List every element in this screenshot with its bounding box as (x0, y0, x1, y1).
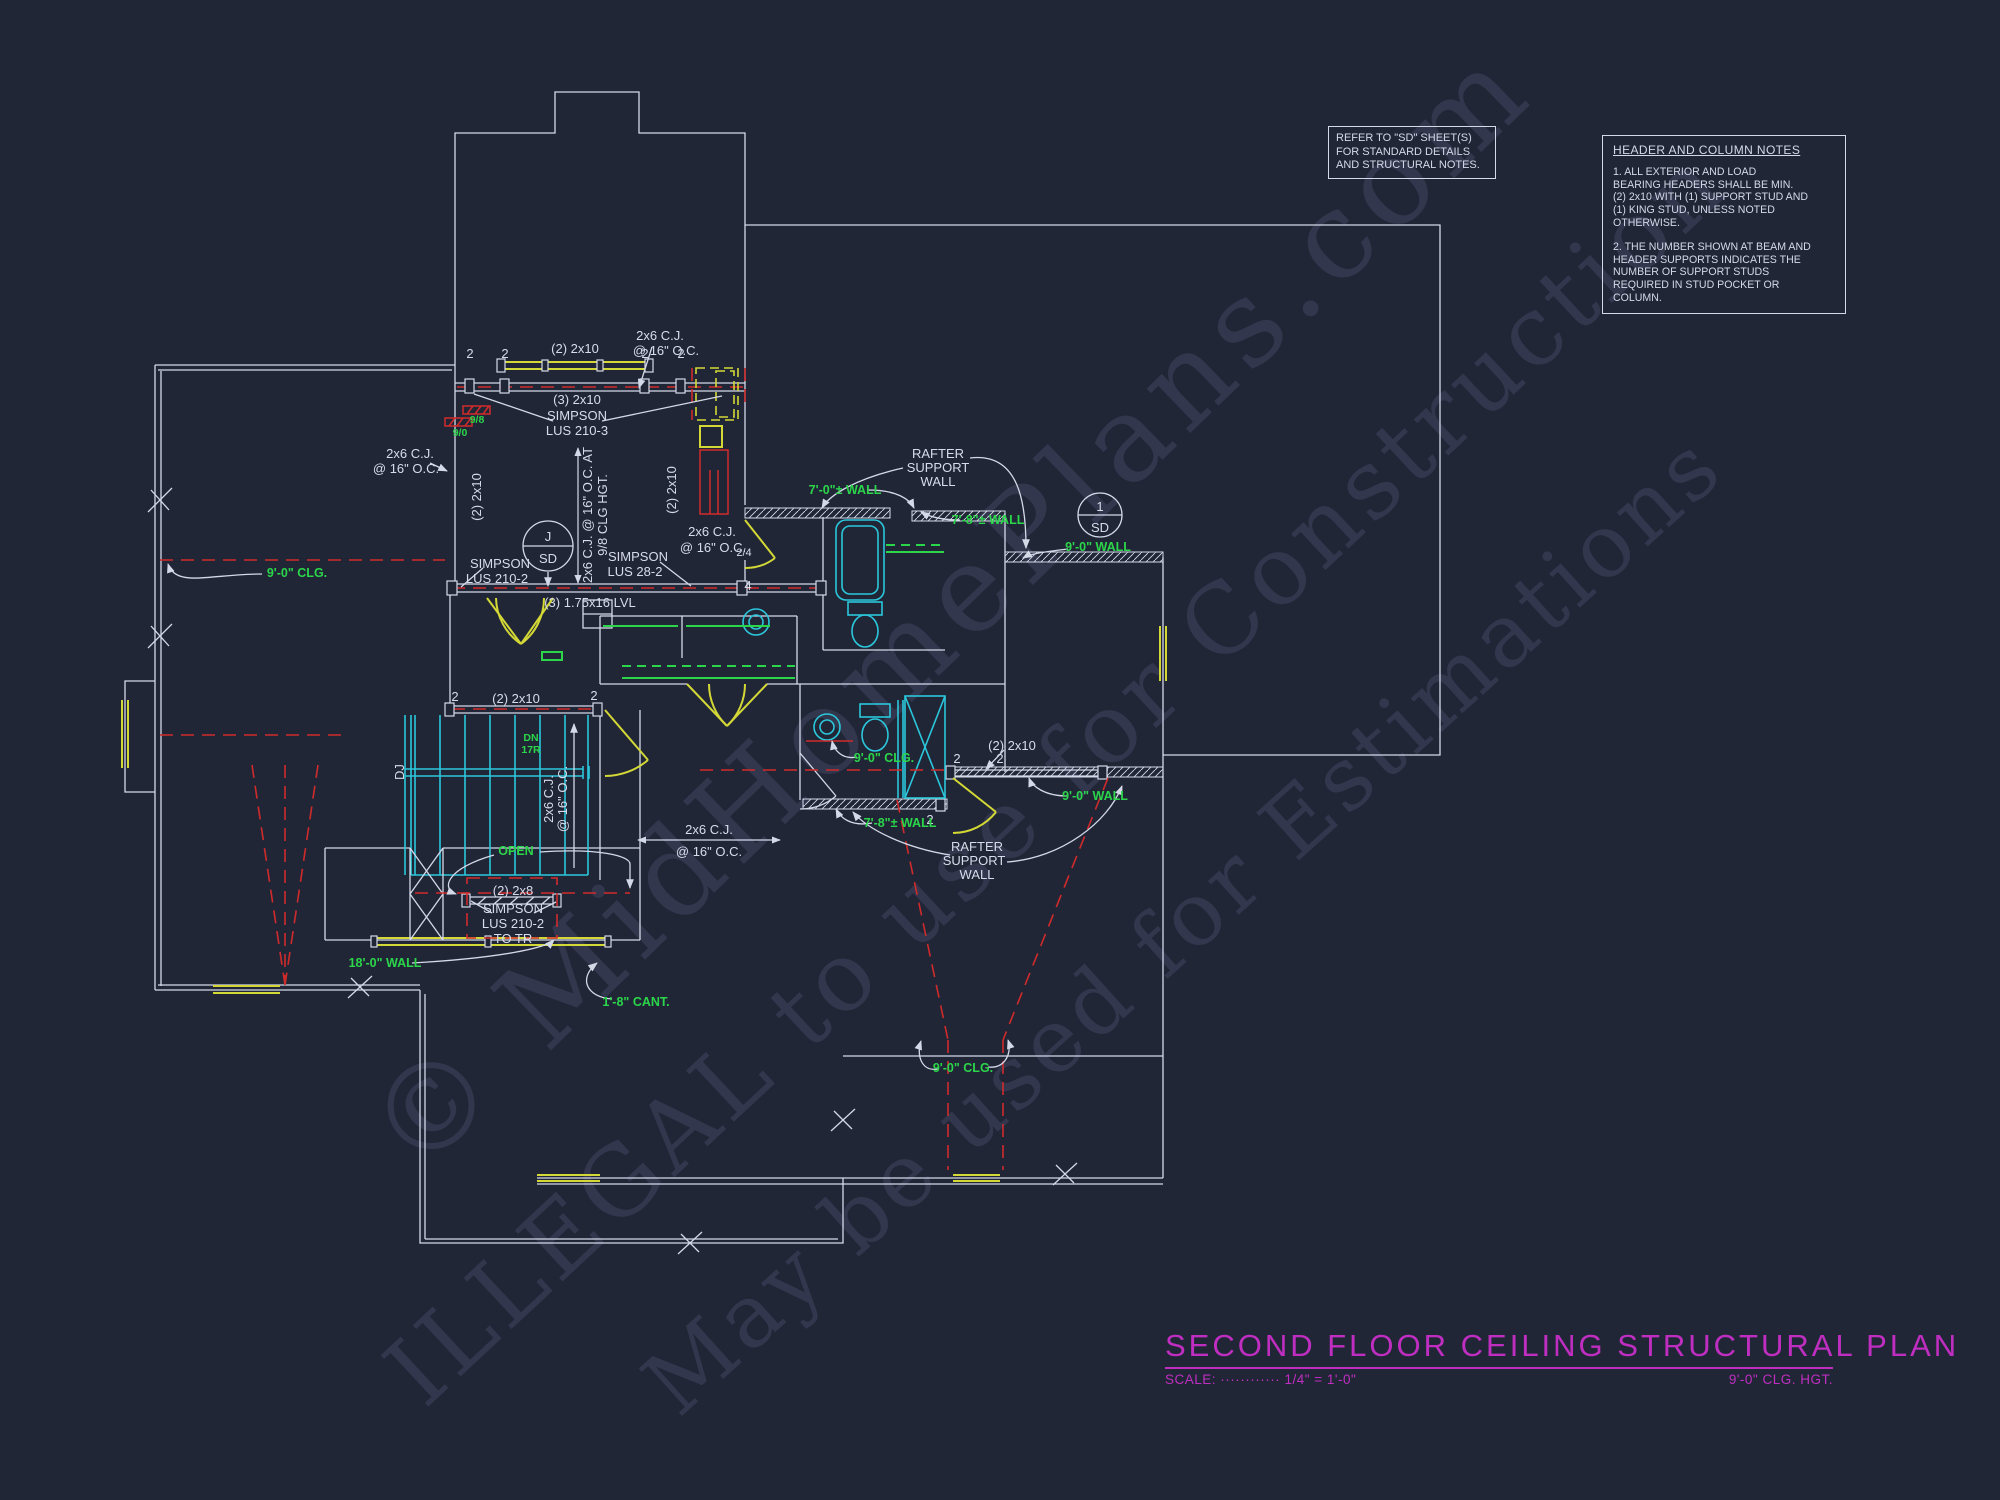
wall-7-0: 7'-0"± WALL (809, 483, 882, 497)
clg-9-0-bottom: 9'-0" CLG. (933, 1061, 993, 1075)
support-label: SUPPORT (943, 853, 1006, 868)
header-note-line: REQUIRED IN STUD POCKET OR (1613, 279, 1835, 292)
lvl-beam: (3) 1.75x16 LVL (544, 595, 636, 610)
refer-note-box: REFER TO "SD" SHEET(S) FOR STANDARD DETA… (1328, 126, 1496, 179)
header-note-line: (2) 2x10 WITH (1) SUPPORT STUD AND (1613, 191, 1835, 204)
stair-header-2x10: (2) 2x10 (492, 691, 540, 706)
open-label: OPEN (498, 844, 533, 858)
tag-9-8: 9/8 (470, 414, 485, 426)
header-note-line: OTHERWISE. (1613, 217, 1835, 230)
ceiling-height-note: 9'-0" CLG. HGT. (1729, 1372, 1833, 1387)
marker-sd: SD (539, 551, 557, 566)
cad-sheet: © MidHomePlans.com ILLEGAL to use for Co… (0, 0, 2000, 1500)
stud-count: 2 (996, 751, 1003, 766)
wall-2x10-right: (2) 2x10 (664, 466, 679, 514)
stud-count: 2 (953, 751, 960, 766)
simpson-lus-210-2: LUS 210-2 (482, 916, 544, 931)
dj-label: DJ (392, 764, 407, 780)
marker-j: J (545, 529, 552, 544)
risers-label: 17R (521, 744, 541, 756)
stud-count: 2 (466, 346, 473, 361)
oc-label-bed3: @ 16" O.C. (676, 844, 742, 859)
tag-9-0: 9/0 (453, 427, 468, 439)
cj-label-bed3: 2x6 C.J. (685, 822, 733, 837)
oc-label-left: @ 16" O.C. (373, 461, 439, 476)
wall-2x10-left: (2) 2x10 (469, 473, 484, 521)
structural-beams (445, 379, 1108, 907)
frac-2-4: 2/4 (736, 547, 751, 559)
wall-7-8-top: 7'-8"± WALL (952, 513, 1025, 527)
simpson-lus-210-3: LUS 210-3 (546, 423, 608, 438)
simpson-label: SIMPSON (547, 408, 607, 423)
marker-1: 1 (1096, 499, 1103, 514)
header-note-line: BEARING HEADERS SHALL BE MIN. (1613, 179, 1835, 192)
header-note-line: 2. THE NUMBER SHOWN AT BEAM AND (1613, 241, 1835, 254)
simpson-label: SIMPSON (470, 556, 530, 571)
simpson-to-tr: TO TR (494, 931, 533, 946)
marker-sd: SD (1091, 520, 1109, 535)
cj-label-hall: 2x6 C.J. (688, 524, 736, 539)
header-note-line: HEADER SUPPORTS INDICATES THE (1613, 254, 1835, 267)
oc-stair-vertical: @ 16" O.C. (555, 766, 570, 832)
leaders-dimensions (168, 347, 1122, 1069)
stud-count-4: 4 (744, 578, 751, 593)
rafter-label: RAFTER (912, 446, 964, 461)
refer-note-line: REFER TO "SD" SHEET(S) (1336, 132, 1488, 146)
beam-2-2x8: (2) 2x8 (493, 883, 533, 898)
wall-9-0-mid: 9'-0" WALL (1062, 789, 1128, 803)
cj-label-left: 2x6 C.J. (386, 446, 434, 461)
header-column-notes-box: HEADER AND COLUMN NOTES 1. ALL EXTERIOR … (1602, 135, 1846, 314)
support-label: SUPPORT (907, 460, 970, 475)
clg-9-0-bath: 9'-0" CLG. (854, 751, 914, 765)
sheet-title: SECOND FLOOR CEILING STRUCTURAL PLAN (1165, 1328, 1833, 1369)
dn-label: DN (523, 732, 538, 744)
header-2x10-right: (2) 2x10 (988, 738, 1036, 753)
wall-label: WALL (921, 474, 956, 489)
simpson-label: SIMPSON (483, 901, 543, 916)
simpson-lus-210-2: LUS 210-2 (466, 571, 528, 586)
stud-count: 2 (590, 688, 597, 703)
stud-count: 2 (451, 689, 458, 704)
exterior-walls (125, 225, 1163, 1243)
refer-note-line: AND STRUCTURAL NOTES. (1336, 159, 1488, 173)
header-note-line: (1) KING STUD, UNLESS NOTED (1613, 204, 1835, 217)
beam-3-2x10: (3) 2x10 (553, 392, 601, 407)
rafter-label: RAFTER (951, 839, 1003, 854)
scale-note: SCALE: ············ 1/4" = 1'-0" (1165, 1372, 1356, 1387)
clg-98-note: 9/8 CLG HGT. (595, 474, 610, 556)
header-2x10-top: (2) 2x10 (551, 341, 599, 356)
sheet-title-block: SECOND FLOOR CEILING STRUCTURAL PLAN SCA… (1165, 1328, 1833, 1387)
wall-7-8-mid: 7'-8"± WALL (864, 816, 937, 830)
wall-18-0: 18'-0" WALL (349, 956, 422, 970)
wall-9-0-top: 9'-0" WALL (1065, 540, 1131, 554)
stud-count: 2 (641, 346, 648, 361)
cj-label-top: 2x6 C.J. (636, 328, 684, 343)
cantilever-1-8: 1'-8" CANT. (602, 995, 669, 1009)
simpson-lus-28-2: LUS 28-2 (608, 564, 663, 579)
header-note-line: 1. ALL EXTERIOR AND LOAD (1613, 166, 1835, 179)
header-note-line: NUMBER OF SUPPORT STUDS (1613, 266, 1835, 279)
cj-stair-vertical: 2x6 C.J. (541, 775, 556, 823)
header-notes-title: HEADER AND COLUMN NOTES (1613, 144, 1835, 157)
stud-count: 2 (677, 346, 684, 361)
header-note-line: COLUMN. (1613, 292, 1835, 305)
cj-vertical-note: 2x6 C.J. @ 16" O.C. AT (580, 447, 595, 583)
clg-9-0-master: 9'-0" CLG. (267, 566, 327, 580)
simpson-label: SIMPSON (608, 549, 668, 564)
wall-label: WALL (960, 867, 995, 882)
refer-note-line: FOR STANDARD DETAILS (1336, 146, 1488, 160)
stud-count: 2 (501, 346, 508, 361)
